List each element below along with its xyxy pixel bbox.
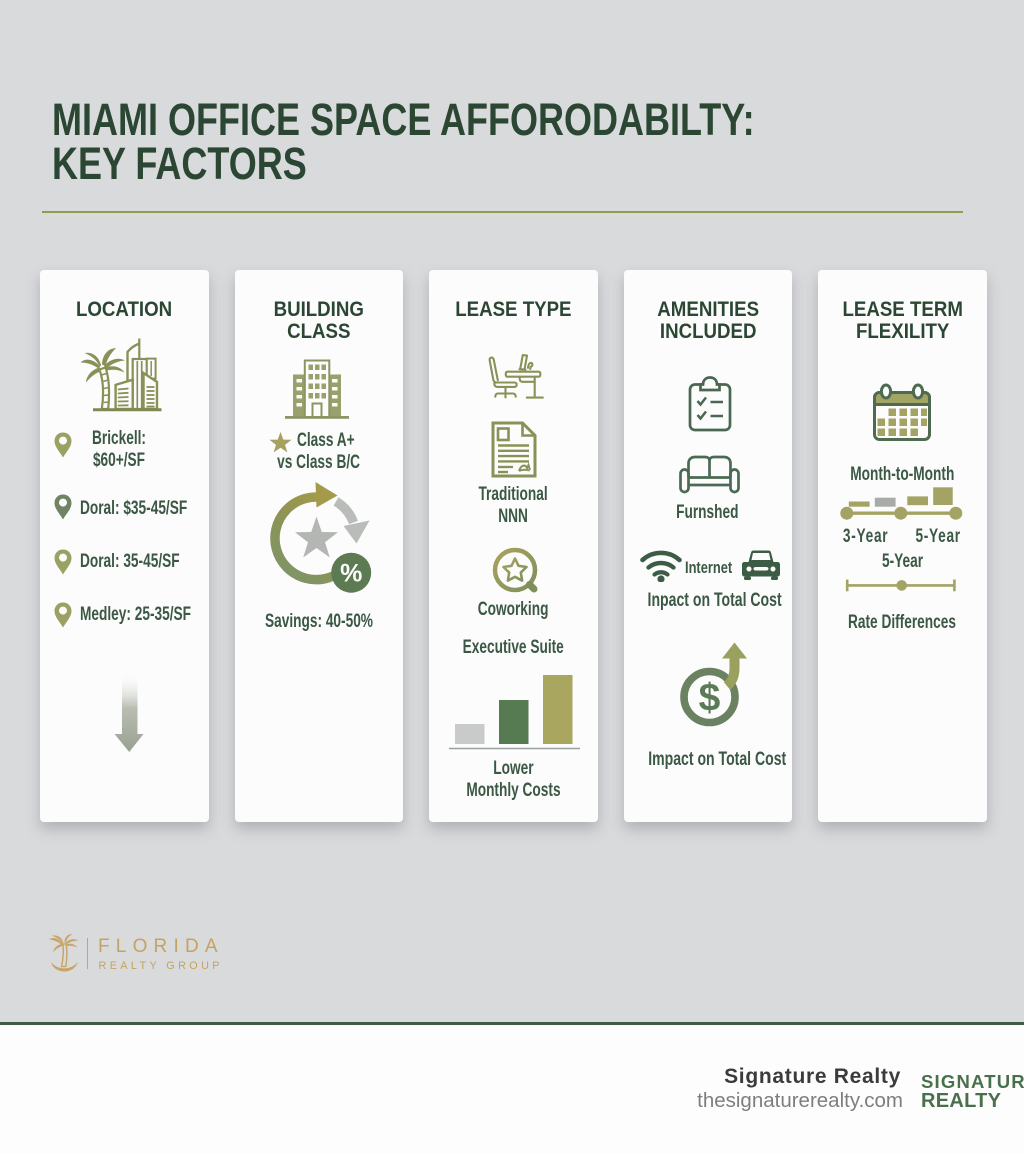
svg-text:%: % (340, 560, 362, 588)
svg-text:$: $ (699, 677, 721, 720)
